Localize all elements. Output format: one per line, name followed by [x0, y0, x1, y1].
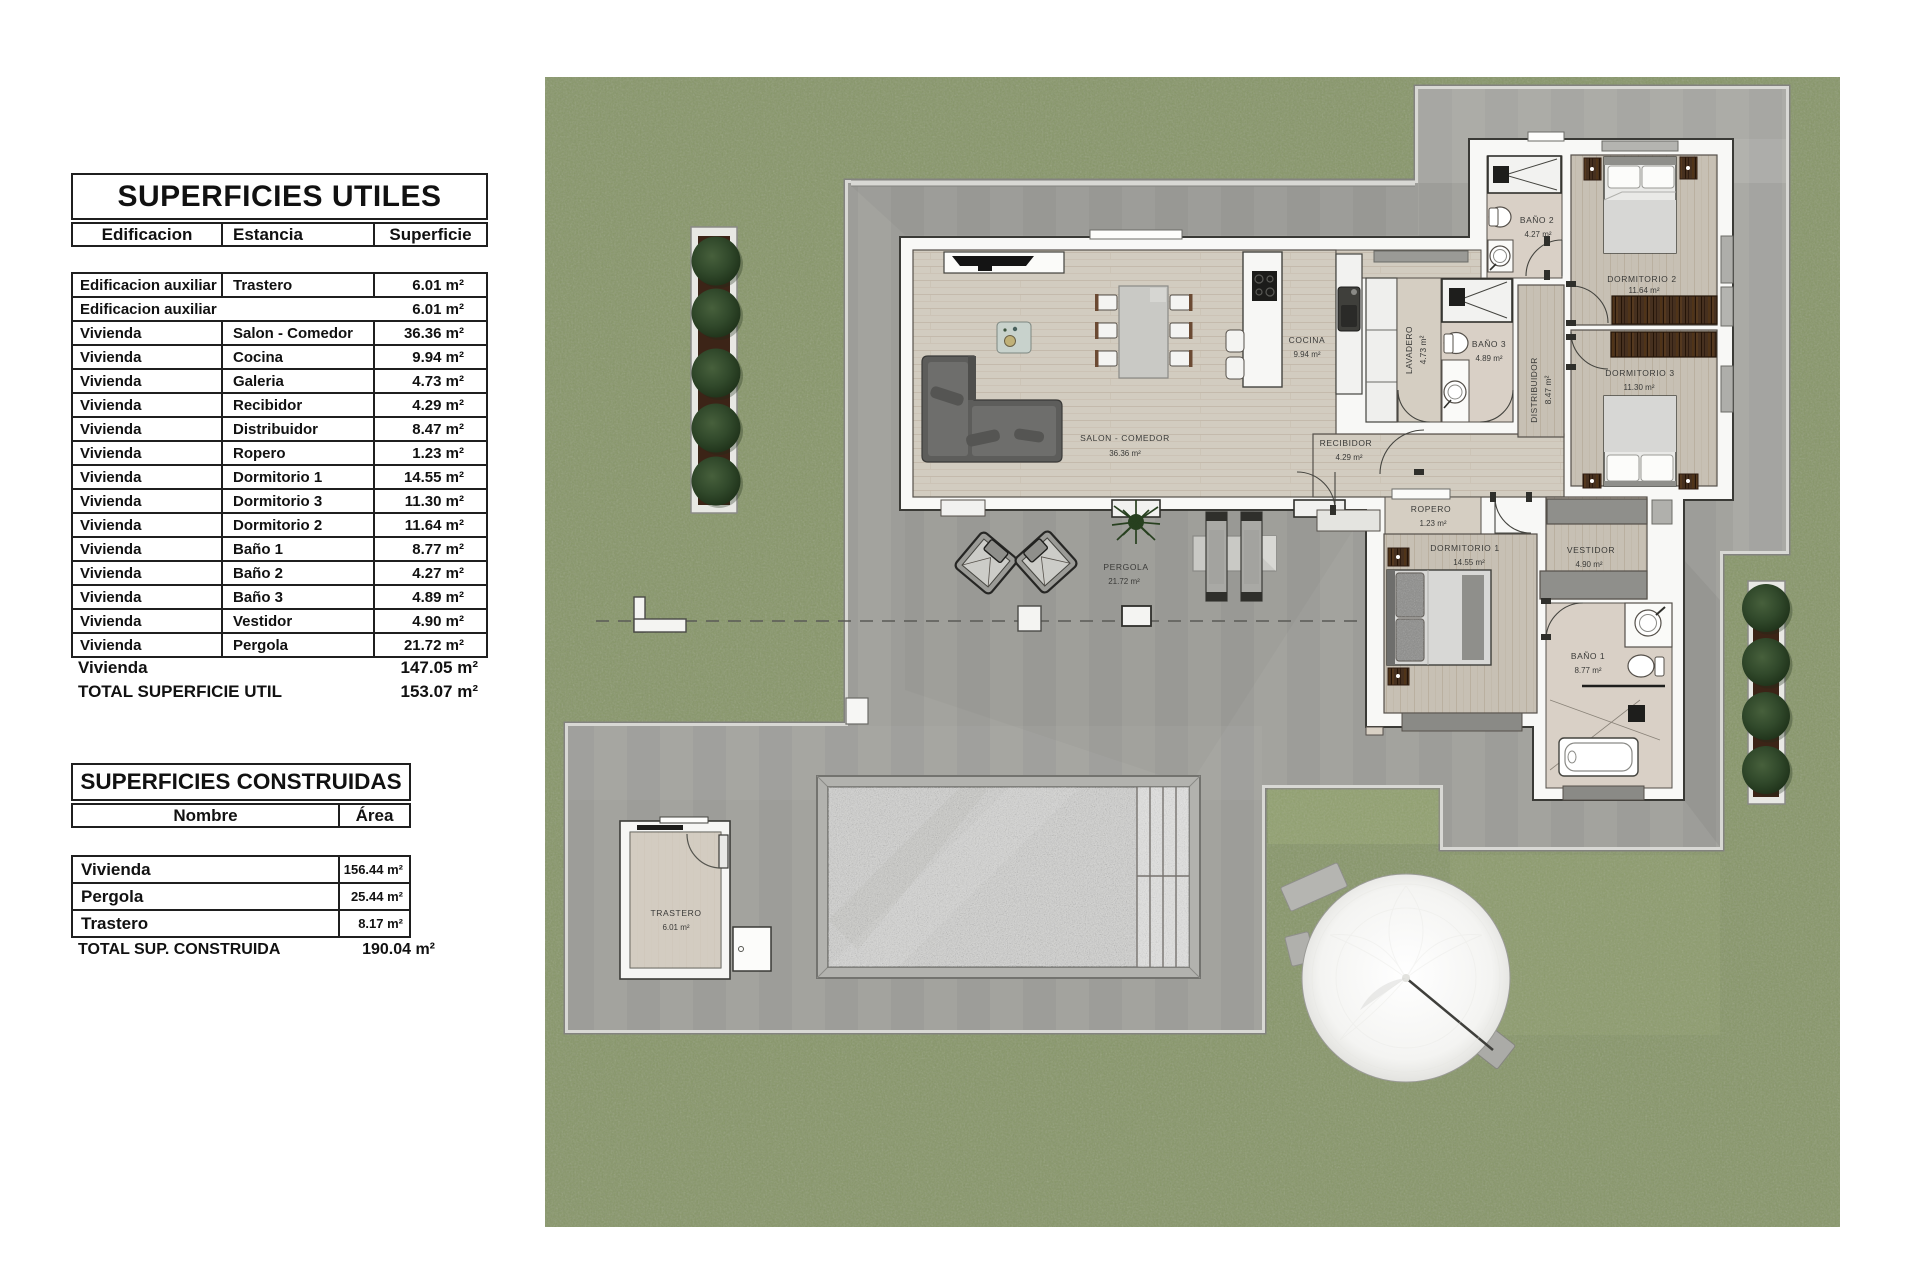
svg-text:1.23 m²: 1.23 m² — [1419, 519, 1446, 528]
svg-text:SALON - COMEDOR: SALON - COMEDOR — [1080, 433, 1170, 443]
svg-text:36.36 m²: 36.36 m² — [1109, 449, 1141, 458]
svg-text:11.64 m²: 11.64 m² — [1629, 286, 1660, 295]
svg-text:PERGOLA: PERGOLA — [1103, 562, 1148, 572]
svg-text:6.01 m²: 6.01 m² — [662, 923, 689, 932]
svg-text:8.47 m²: 8.47 m² — [1543, 375, 1553, 404]
svg-text:4.89 m²: 4.89 m² — [1475, 354, 1502, 363]
svg-text:9.94 m²: 9.94 m² — [1293, 350, 1320, 359]
svg-text:COCINA: COCINA — [1289, 335, 1326, 345]
svg-text:DORMITORIO 1: DORMITORIO 1 — [1430, 543, 1499, 553]
svg-text:DORMITORIO 2: DORMITORIO 2 — [1607, 274, 1676, 284]
svg-text:4.90 m²: 4.90 m² — [1575, 560, 1602, 569]
svg-text:11.30 m²: 11.30 m² — [1624, 383, 1655, 392]
svg-text:4.73 m²: 4.73 m² — [1418, 335, 1428, 364]
svg-text:BAÑO 1: BAÑO 1 — [1571, 651, 1605, 661]
svg-text:LAVADERO: LAVADERO — [1404, 326, 1414, 374]
svg-text:21.72 m²: 21.72 m² — [1108, 577, 1140, 586]
svg-text:ROPERO: ROPERO — [1411, 504, 1451, 514]
svg-text:BAÑO 2: BAÑO 2 — [1520, 215, 1554, 225]
svg-text:4.29 m²: 4.29 m² — [1335, 453, 1362, 462]
svg-text:VESTIDOR: VESTIDOR — [1567, 545, 1615, 555]
svg-text:8.77 m²: 8.77 m² — [1574, 666, 1601, 675]
svg-text:DORMITORIO 3: DORMITORIO 3 — [1605, 368, 1674, 378]
svg-text:TRASTERO: TRASTERO — [650, 908, 701, 918]
svg-text:14.55 m²: 14.55 m² — [1453, 558, 1485, 567]
svg-text:RECIBIDOR: RECIBIDOR — [1320, 438, 1373, 448]
svg-text:BAÑO 3: BAÑO 3 — [1472, 339, 1506, 349]
svg-text:DISTRIBUIDOR: DISTRIBUIDOR — [1529, 357, 1539, 422]
svg-text:4.27 m²: 4.27 m² — [1524, 230, 1551, 239]
